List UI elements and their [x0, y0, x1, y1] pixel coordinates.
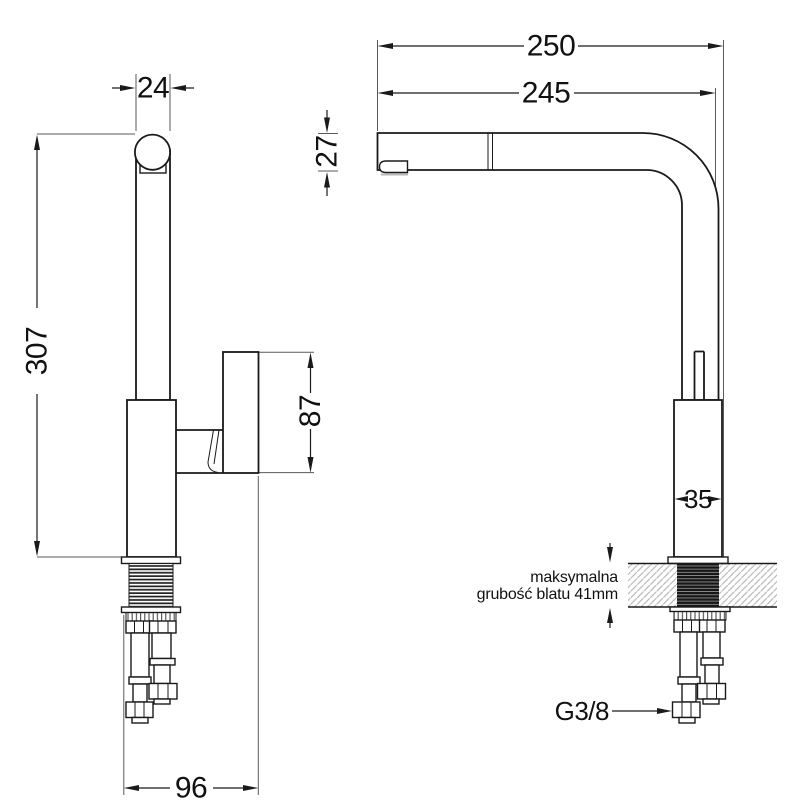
- faucet-technical-drawing: 24 307 87 96 250 245 27: [0, 0, 800, 800]
- dimension-96: 96: [124, 772, 258, 800]
- front-supply-hoses: [126, 621, 177, 723]
- front-mounting-nut: [126, 613, 176, 622]
- front-washer: [122, 607, 181, 613]
- side-spout: [378, 133, 719, 400]
- side-base-flange: [668, 557, 728, 564]
- dimension-27: 27: [311, 110, 344, 196]
- thread-size-annotation: G3/8: [555, 696, 672, 726]
- dim-label-35: 35: [684, 484, 712, 514]
- front-view: [122, 135, 259, 723]
- countertop-hatch-right: [719, 564, 777, 608]
- dim-label-307: 307: [21, 327, 54, 376]
- countertop: [628, 564, 777, 608]
- side-washer: [670, 607, 730, 612]
- dimension-307: 307: [21, 135, 54, 557]
- front-handle: [223, 352, 259, 473]
- front-threaded-shank: [129, 564, 173, 608]
- drawing-canvas: 24 307 87 96 250 245 27: [0, 0, 800, 800]
- front-spout-tube: [136, 150, 170, 400]
- thread-size-label: G3/8: [555, 696, 609, 726]
- dimension-245: 245: [378, 77, 716, 110]
- side-threaded-shank: [677, 564, 719, 608]
- dim-label-27: 27: [311, 135, 344, 167]
- dimension-87: 87: [294, 353, 327, 473]
- countertop-hatch-left: [628, 564, 677, 608]
- side-view: [378, 133, 778, 723]
- front-body: [127, 400, 176, 557]
- countertop-note-line1: maksymalna: [530, 569, 618, 586]
- side-body: [674, 400, 722, 557]
- front-base-flange: [122, 557, 181, 564]
- front-spout-end-circle: [135, 135, 170, 170]
- front-handle-joint: [176, 430, 223, 473]
- dim-label-87: 87: [294, 395, 327, 427]
- dim-label-24: 24: [137, 72, 169, 105]
- side-aerator-tip: [380, 161, 408, 173]
- side-mounting-nut: [674, 612, 726, 621]
- dim-label-96: 96: [175, 772, 207, 800]
- dimension-250: 250: [378, 30, 724, 63]
- front-mounting: [122, 557, 181, 621]
- countertop-thickness-annotation: maksymalna grubość blatu 41mm: [477, 543, 619, 628]
- dim-label-250: 250: [527, 30, 576, 63]
- dim-label-245: 245: [522, 77, 571, 110]
- side-supply-hoses: [673, 620, 726, 723]
- countertop-note-line2: grubość blatu 41mm: [477, 586, 618, 603]
- dimension-24: 24: [112, 72, 194, 105]
